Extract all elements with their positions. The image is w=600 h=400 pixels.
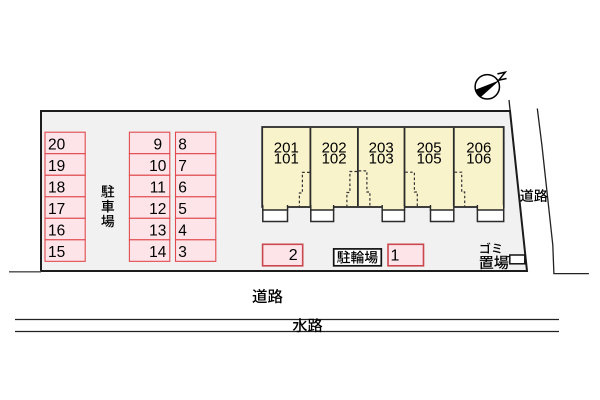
- svg-text:15: 15: [48, 244, 65, 261]
- svg-text:102: 102: [322, 151, 347, 168]
- svg-text:11: 11: [150, 180, 166, 197]
- svg-text:106: 106: [466, 151, 491, 168]
- svg-text:10: 10: [149, 158, 167, 175]
- svg-text:9: 9: [153, 136, 162, 153]
- svg-text:5: 5: [178, 201, 187, 218]
- svg-text:101: 101: [274, 151, 299, 168]
- svg-text:18: 18: [48, 180, 65, 197]
- svg-text:3: 3: [178, 244, 187, 261]
- svg-text:105: 105: [417, 151, 442, 168]
- svg-text:19: 19: [48, 158, 65, 175]
- svg-text:103: 103: [369, 151, 394, 168]
- svg-text:13: 13: [149, 223, 166, 240]
- svg-text:1: 1: [391, 247, 400, 264]
- svg-text:7: 7: [178, 158, 187, 175]
- svg-text:16: 16: [48, 223, 65, 240]
- svg-text:6: 6: [178, 180, 187, 197]
- svg-text:12: 12: [149, 201, 166, 218]
- svg-text:20: 20: [48, 136, 66, 153]
- svg-text:4: 4: [178, 223, 187, 240]
- svg-text:14: 14: [149, 244, 167, 261]
- svg-text:2: 2: [289, 247, 298, 264]
- svg-text:8: 8: [178, 136, 187, 153]
- svg-text:17: 17: [48, 201, 65, 218]
